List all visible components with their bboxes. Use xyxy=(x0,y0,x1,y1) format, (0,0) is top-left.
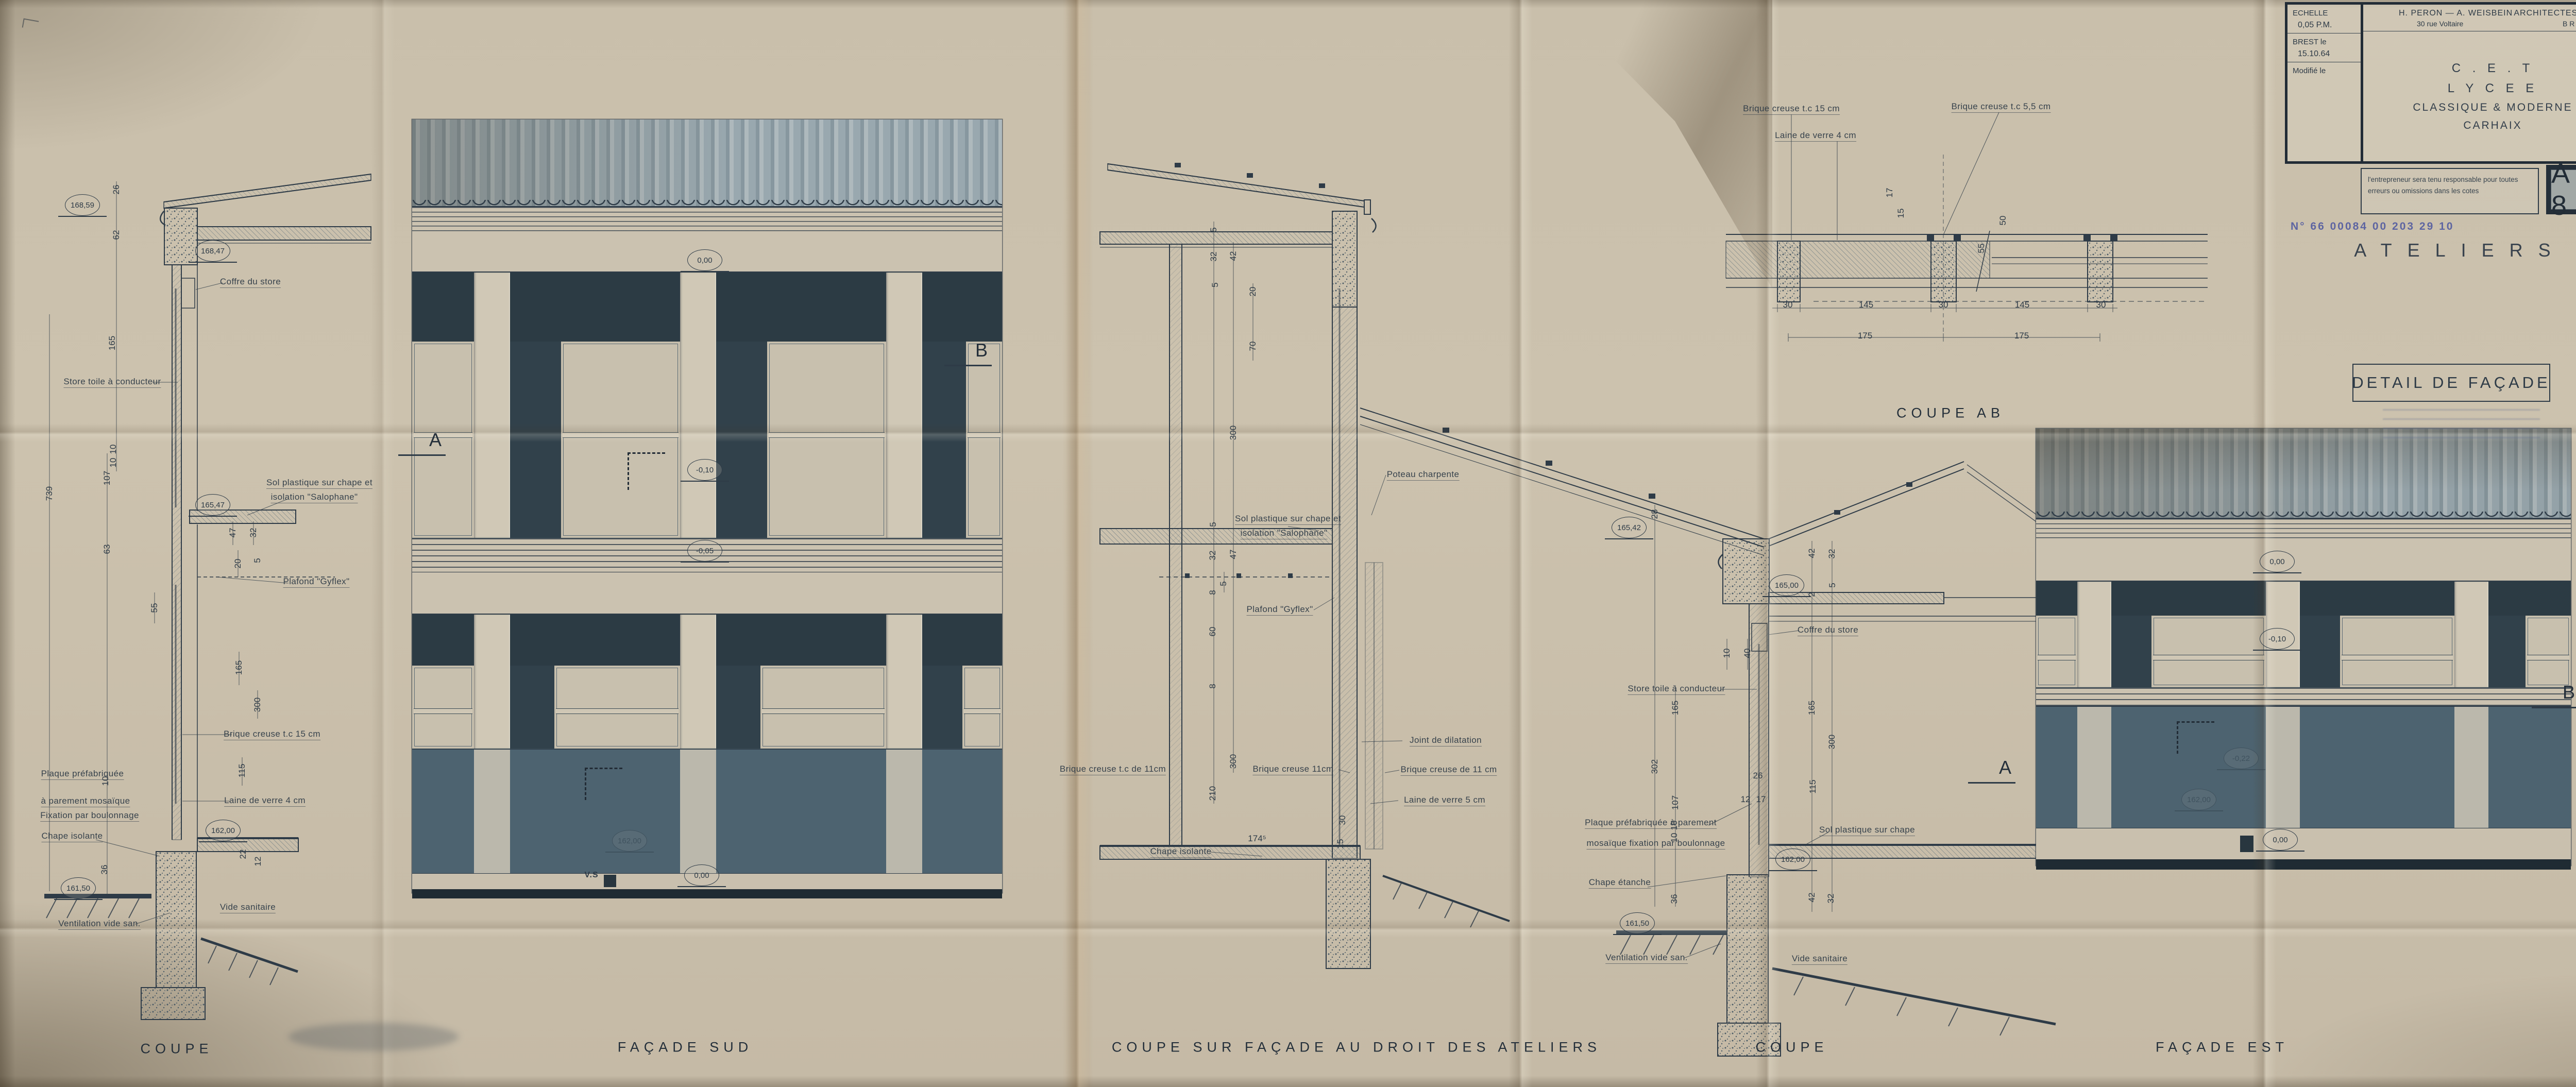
facade-sud-drawing xyxy=(412,120,1002,893)
reference-corner-mark xyxy=(628,452,665,490)
window-fragment xyxy=(922,615,1002,749)
window xyxy=(716,615,886,749)
pilaster xyxy=(886,273,922,538)
sill-band xyxy=(2036,688,2571,706)
pilaster xyxy=(2454,582,2488,687)
window-fragment xyxy=(412,273,474,538)
drawing-title: ATELIERS xyxy=(2354,240,2566,261)
project-line-2: L Y C E E xyxy=(2448,81,2538,96)
window-fragment xyxy=(412,615,474,749)
architects-city: B R E S T xyxy=(2563,20,2576,28)
architects-title: ARCHITECTES D.P.L.G. xyxy=(2514,9,2576,18)
sheet-number: A _ 8 xyxy=(2551,169,2576,210)
modified-label: Modifié le xyxy=(2293,66,2326,75)
pilaster xyxy=(2077,582,2111,687)
sill-band xyxy=(412,538,1002,572)
window-row xyxy=(2036,581,2571,688)
window xyxy=(510,615,680,749)
base-shadow-band xyxy=(412,749,1002,873)
roof-fascia-band xyxy=(412,120,1002,207)
disclaimer-line-1: l'entrepreneur sera tenu responsable pou… xyxy=(2368,176,2518,183)
parapet-band xyxy=(2036,541,2571,581)
date-label: BREST le xyxy=(2293,38,2327,46)
window xyxy=(716,273,886,538)
pilaster xyxy=(2266,582,2300,687)
plinth-strip xyxy=(2036,828,2571,859)
architects-address: 30 rue Voltaire xyxy=(2417,20,2463,28)
pilaster xyxy=(474,273,510,538)
drawing-sheet: 168,59168,47165,47162,00161,50Coffre du … xyxy=(0,0,2576,1087)
upper-window-row xyxy=(412,271,1002,538)
window xyxy=(510,273,680,538)
window xyxy=(2111,582,2266,687)
scale-label: ECHELLE xyxy=(2293,9,2328,18)
window xyxy=(2300,582,2454,687)
coupe-left-group xyxy=(44,174,371,1020)
project-title: C . E . T L Y C E E CLASSIQUE & MODERNE … xyxy=(2363,31,2576,161)
floor-spandrel-band xyxy=(412,572,1002,614)
reference-corner-mark xyxy=(2177,721,2214,754)
title-block-right-column: H. PERON — A. WEISBEIN ARCHITECTES D.P.L… xyxy=(2363,5,2576,161)
coupe-ateliers-group xyxy=(1100,163,1764,969)
ground-line xyxy=(412,889,1002,898)
architects-names: H. PERON — A. WEISBEIN xyxy=(2399,9,2513,18)
disclaimer-note: l'entrepreneur sera tenu responsable pou… xyxy=(2361,168,2539,214)
vent-square xyxy=(2240,836,2253,852)
cornice-lines xyxy=(412,207,1002,233)
facade-est-drawing xyxy=(2036,429,2571,865)
detail-title-box: DETAIL DE FAÇADE xyxy=(2352,364,2550,402)
cornice-lines xyxy=(2036,519,2571,541)
registration-stamp-number: N° 66 00084 00 203 29 10 xyxy=(2291,220,2454,233)
window-fragment xyxy=(922,273,1002,538)
coupe-ab-group xyxy=(1726,112,2208,342)
disclaimer-line-2: erreurs ou omissions dans les cotes xyxy=(2368,187,2479,195)
pilaster xyxy=(680,273,716,538)
project-line-4: CARHAIX xyxy=(2463,120,2522,132)
ground-line xyxy=(2036,859,2571,870)
pilaster xyxy=(886,615,922,749)
lower-window-row xyxy=(412,614,1002,749)
date-value: 15.10.64 xyxy=(2293,49,2357,59)
fascia-scallop-edge xyxy=(412,200,1002,207)
pilaster xyxy=(474,615,510,749)
sheet-number-box: A _ 8 xyxy=(2546,165,2576,214)
base-shadow-band xyxy=(2036,706,2571,828)
vent-square xyxy=(604,875,616,887)
title-block: ECHELLE 0,05 P.M. BREST le 15.10.64 Modi… xyxy=(2285,2,2576,164)
project-line-3: CLASSIQUE & MODERNE xyxy=(2413,101,2572,114)
window-fragment xyxy=(2488,582,2571,687)
plinth-strip xyxy=(412,873,1002,889)
project-line-1: C . E . T xyxy=(2452,61,2534,76)
fascia-scallop-edge xyxy=(2036,512,2571,518)
reference-corner-mark xyxy=(585,768,622,800)
title-block-left-column: ECHELLE 0,05 P.M. BREST le 15.10.64 Modi… xyxy=(2287,5,2363,161)
parapet-band xyxy=(412,233,1002,271)
window-fragment xyxy=(2036,582,2077,687)
approval-stamp-illegible xyxy=(2383,409,2540,446)
pilaster xyxy=(680,615,716,749)
scale-value: 0,05 P.M. xyxy=(2293,21,2357,30)
